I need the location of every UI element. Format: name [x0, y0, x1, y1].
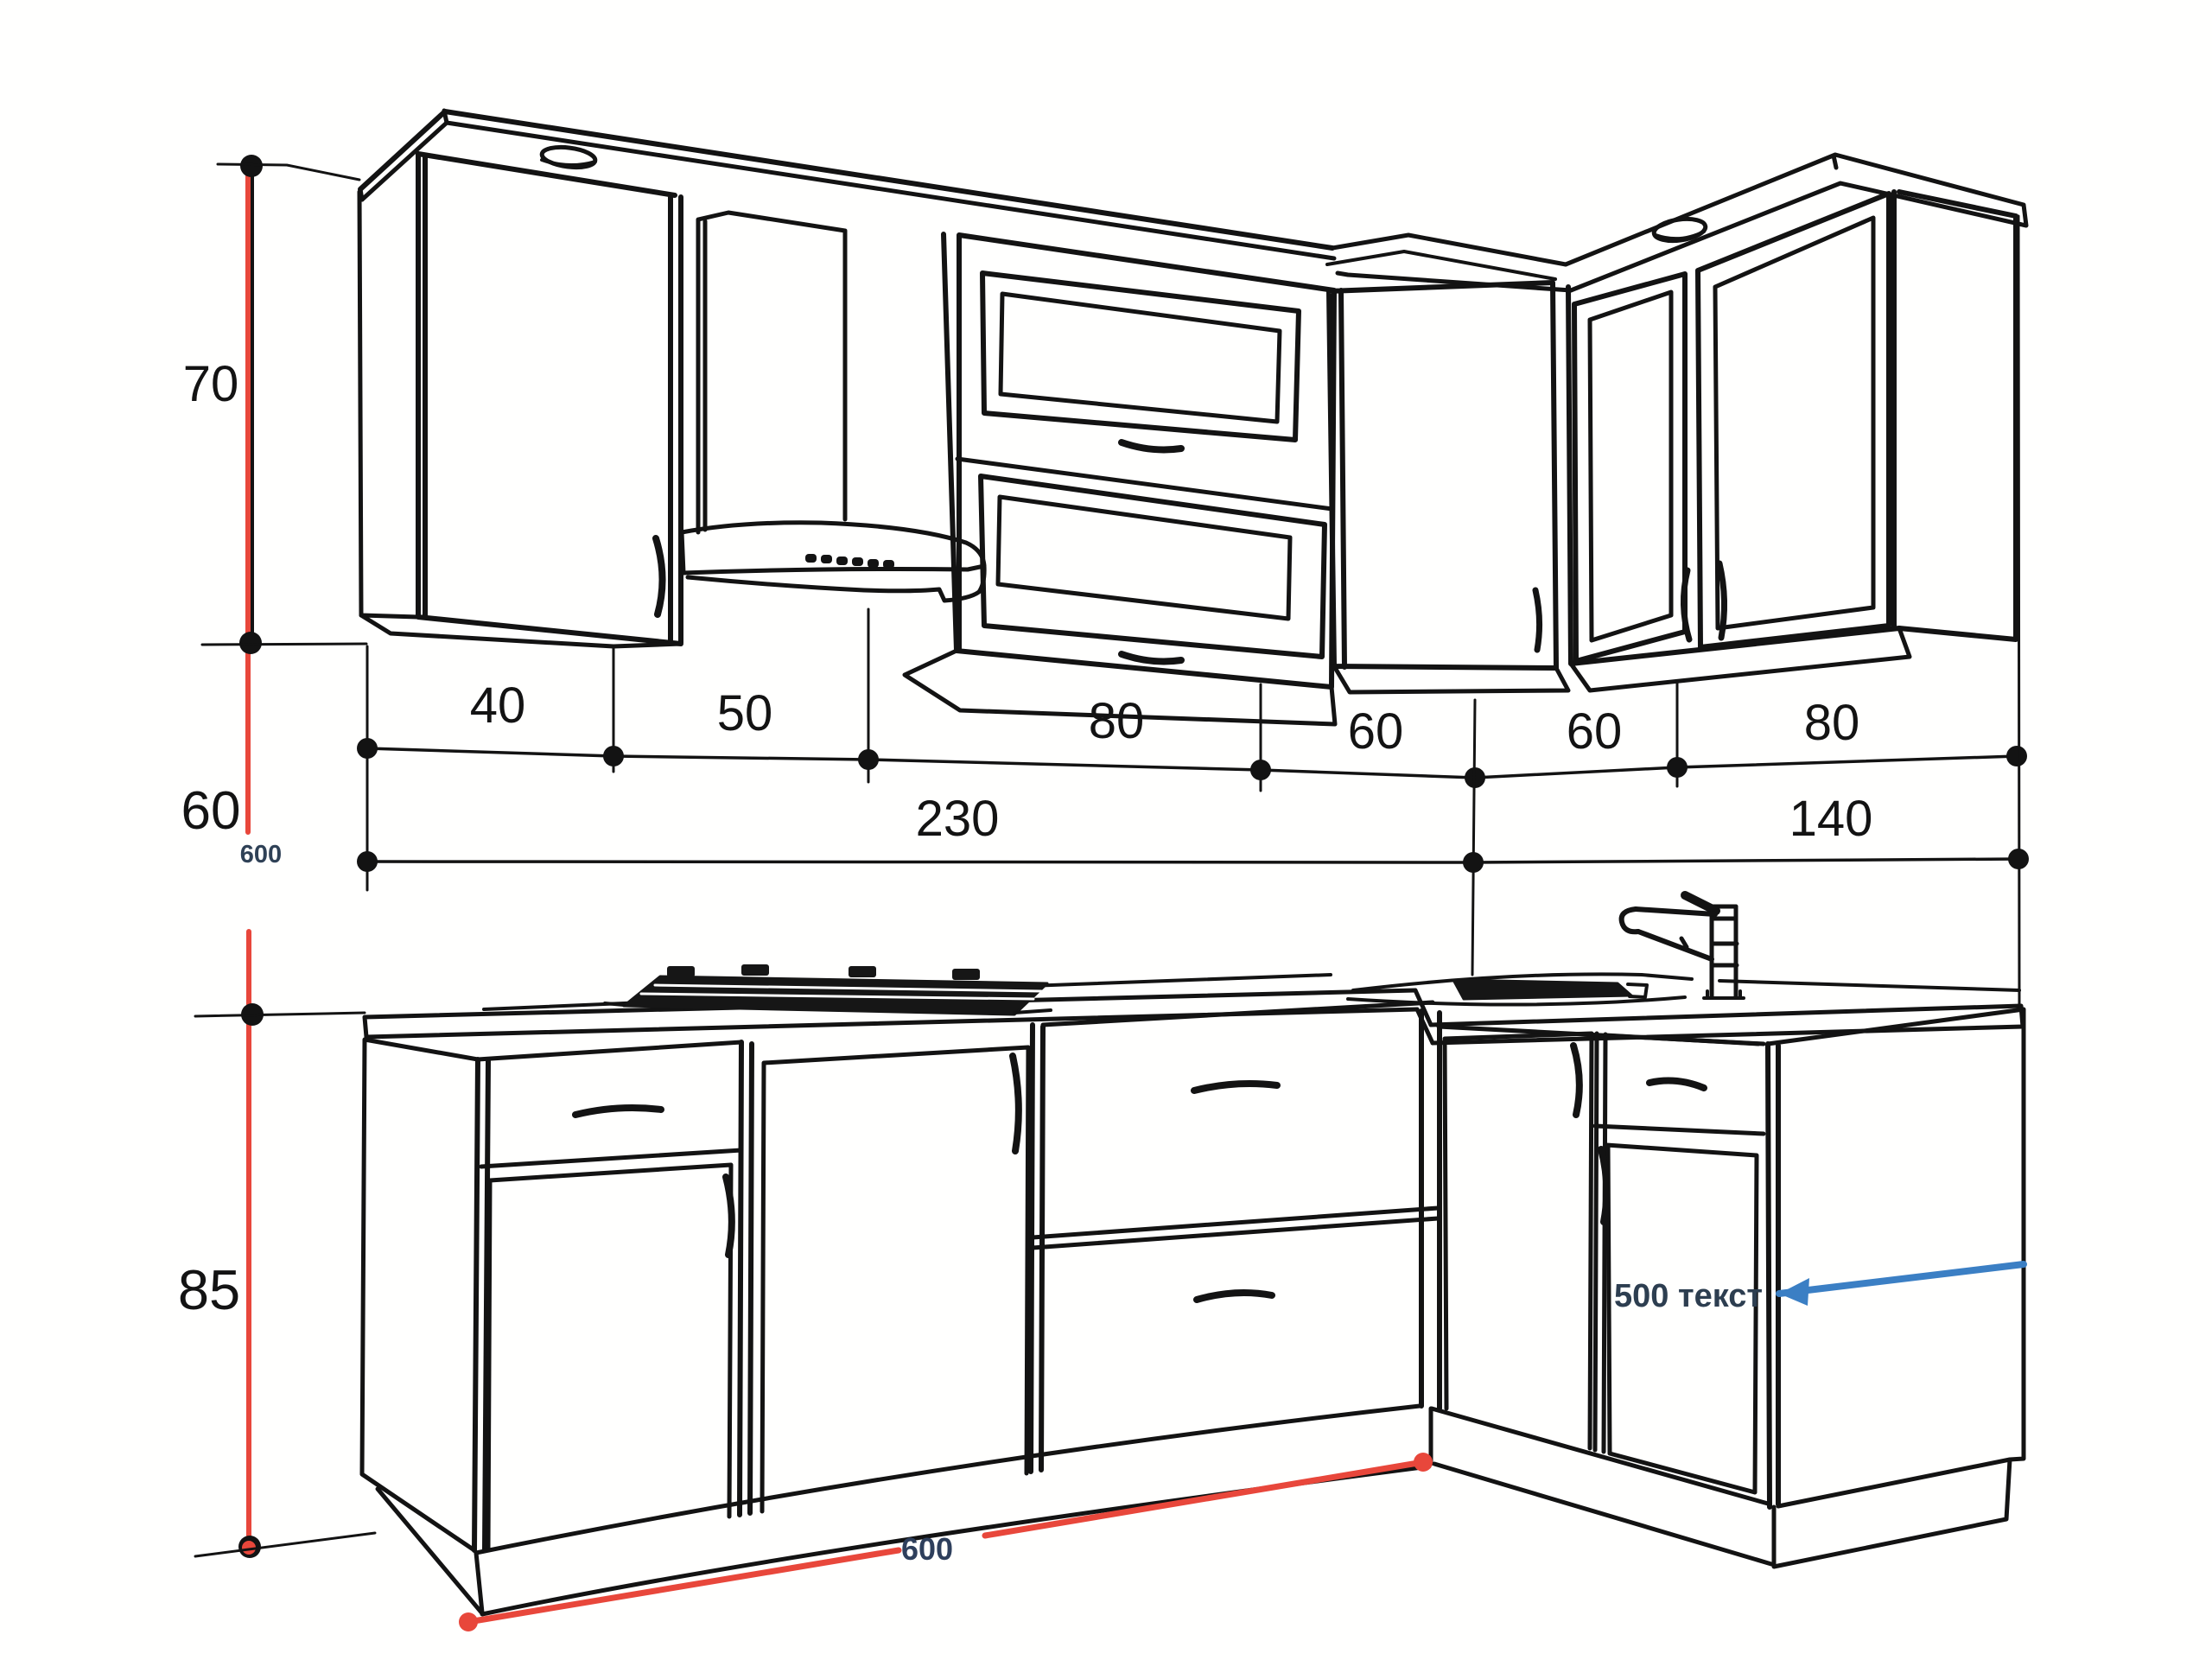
svg-text:40: 40 — [470, 677, 526, 734]
svg-text:80: 80 — [1089, 693, 1145, 749]
svg-text:50: 50 — [717, 685, 773, 741]
svg-text:600: 600 — [901, 1531, 953, 1567]
svg-text:70: 70 — [183, 356, 239, 412]
svg-text:60: 60 — [1567, 703, 1623, 760]
svg-text:80: 80 — [1804, 695, 1860, 751]
svg-text:60: 60 — [181, 781, 241, 841]
svg-text:500 текст: 500 текст — [1614, 1278, 1763, 1314]
svg-text:60: 60 — [1348, 703, 1404, 760]
svg-text:230: 230 — [916, 791, 1000, 847]
svg-text:600: 600 — [240, 841, 282, 868]
svg-text:140: 140 — [1789, 791, 1873, 847]
svg-text:85: 85 — [178, 1258, 240, 1321]
